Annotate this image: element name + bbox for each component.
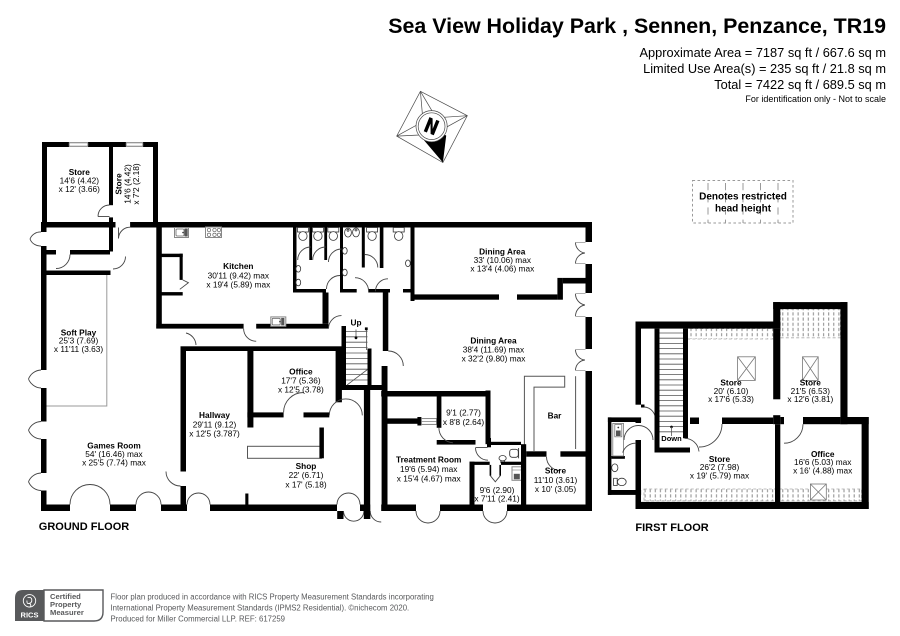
svg-text:head height: head height [715, 204, 772, 215]
svg-text:Measurer: Measurer [50, 608, 84, 617]
svg-text:x 13'4 (4.06) max: x 13'4 (4.06) max [470, 263, 535, 273]
svg-text:x 10' (3.05): x 10' (3.05) [535, 484, 576, 494]
svg-text:x 19'4 (5.89) max: x 19'4 (5.89) max [206, 279, 271, 289]
svg-text:FIRST FLOOR: FIRST FLOOR [635, 522, 708, 534]
svg-text:GROUND FLOOR: GROUND FLOOR [39, 521, 129, 533]
svg-text:x 17'6 (5.33): x 17'6 (5.33) [708, 394, 754, 404]
svg-text:x 25'5 (7.74) max: x 25'5 (7.74) max [82, 457, 147, 467]
svg-text:Denotes restricted: Denotes restricted [699, 192, 787, 203]
svg-text:x 8'8 (2.64): x 8'8 (2.64) [443, 417, 484, 427]
svg-text:x 17' (5.18): x 17' (5.18) [285, 479, 326, 489]
svg-text:Down: Down [661, 434, 682, 443]
svg-text:Sea View Holiday Park , Sennen: Sea View Holiday Park , Sennen, Penzance… [388, 14, 886, 38]
svg-text:Bar: Bar [548, 411, 563, 421]
svg-text:x 7'2 (2.18): x 7'2 (2.18) [131, 163, 141, 204]
svg-text:Kitchen: Kitchen [223, 261, 253, 271]
svg-text:x 12'6 (3.81): x 12'6 (3.81) [787, 394, 833, 404]
svg-text:Limited Use Area(s) = 235 sq f: Limited Use Area(s) = 235 sq ft / 21.8 s… [643, 61, 886, 76]
svg-text:x 32'2 (9.80) max: x 32'2 (9.80) max [462, 353, 527, 363]
svg-text:Approximate Area = 7187 sq ft: Approximate Area = 7187 sq ft / 667.6 sq… [640, 45, 886, 60]
svg-text:For identification only - Not: For identification only - Not to scale [745, 94, 886, 104]
svg-text:Up: Up [350, 318, 361, 328]
svg-text:x 12' (3.66): x 12' (3.66) [59, 184, 100, 194]
svg-text:x 12'5 (3.78): x 12'5 (3.78) [278, 385, 324, 395]
svg-text:x 15'4 (4.67) max: x 15'4 (4.67) max [397, 473, 462, 483]
svg-text:RICS: RICS [21, 611, 39, 620]
svg-text:Produced for Miller Commercial: Produced for Miller Commercial LLP. REF:… [111, 615, 286, 624]
svg-text:Floor plan produced in accorda: Floor plan produced in accordance with R… [111, 593, 434, 602]
svg-text:x 16' (4.88) max: x 16' (4.88) max [793, 465, 853, 475]
svg-text:International Property Measure: International Property Measurement Stand… [111, 604, 410, 613]
svg-text:Total = 7422 sq ft / 689.5 sq: Total = 7422 sq ft / 689.5 sq m [714, 77, 886, 92]
svg-text:x 11'11 (3.63): x 11'11 (3.63) [54, 344, 103, 354]
svg-text:x 12'5 (3.787): x 12'5 (3.787) [189, 429, 240, 439]
svg-text:x 7'11 (2.41): x 7'11 (2.41) [474, 494, 519, 504]
svg-text:x 19' (5.79) max: x 19' (5.79) max [690, 471, 750, 481]
